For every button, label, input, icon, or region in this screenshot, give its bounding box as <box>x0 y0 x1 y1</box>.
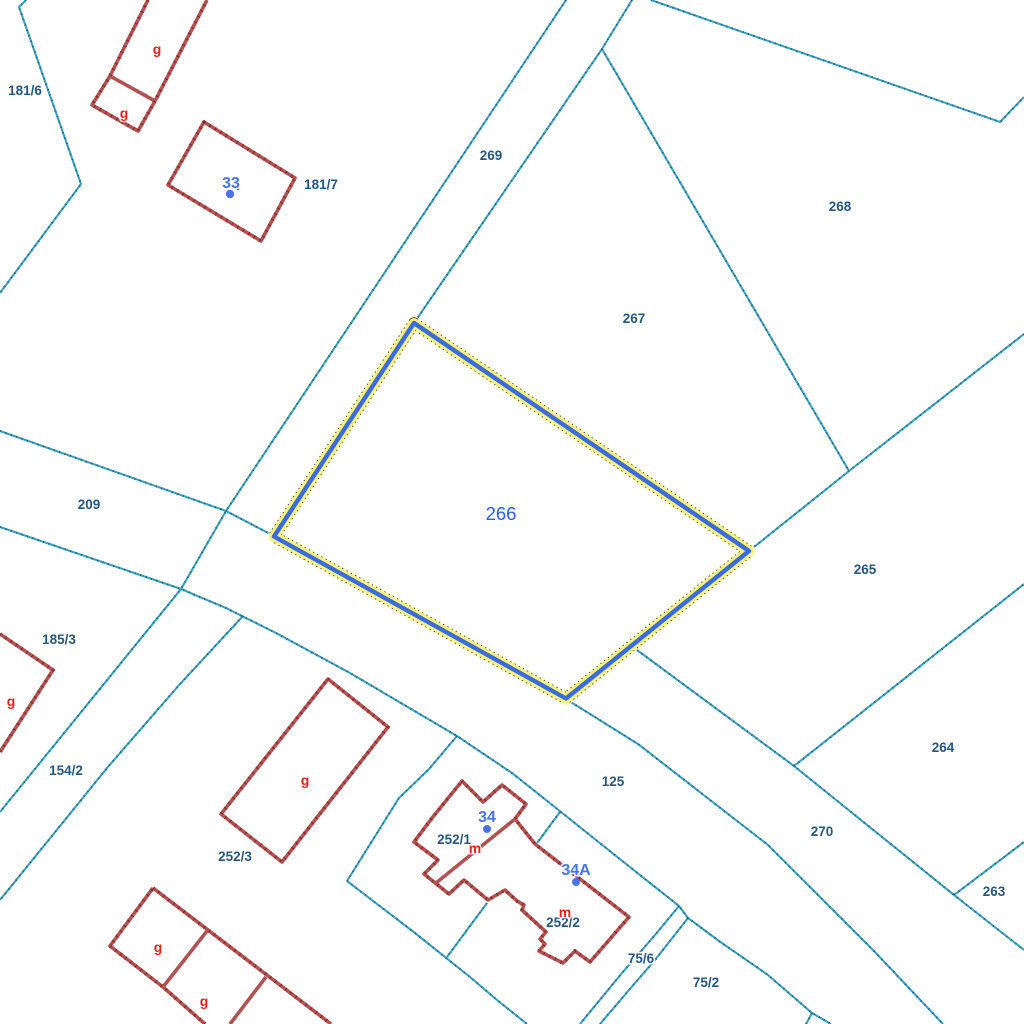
svg-text:263: 263 <box>983 884 1006 899</box>
svg-text:270: 270 <box>811 824 834 839</box>
svg-text:g: g <box>120 105 129 121</box>
svg-text:154/2: 154/2 <box>49 763 83 778</box>
svg-text:125: 125 <box>602 774 625 789</box>
svg-text:33: 33 <box>222 175 240 192</box>
svg-text:268: 268 <box>829 199 852 214</box>
svg-text:g: g <box>7 693 16 709</box>
svg-text:g: g <box>200 993 209 1009</box>
svg-text:265: 265 <box>854 562 877 577</box>
svg-text:252/1: 252/1 <box>437 832 471 847</box>
svg-text:75/6: 75/6 <box>628 951 655 966</box>
svg-text:252/3: 252/3 <box>218 849 252 864</box>
svg-text:g: g <box>301 772 310 788</box>
svg-text:185/3: 185/3 <box>42 632 76 647</box>
svg-text:75/2: 75/2 <box>693 975 719 990</box>
svg-text:181/7: 181/7 <box>304 177 338 192</box>
svg-text:34A: 34A <box>561 862 591 879</box>
svg-text:m: m <box>469 840 481 856</box>
svg-text:264: 264 <box>932 740 955 755</box>
svg-text:g: g <box>154 939 163 955</box>
svg-text:267: 267 <box>623 311 646 326</box>
svg-text:m: m <box>559 904 571 920</box>
svg-text:34: 34 <box>478 809 496 826</box>
svg-text:g: g <box>153 41 162 57</box>
svg-text:209: 209 <box>78 497 101 512</box>
svg-text:269: 269 <box>480 148 503 163</box>
svg-text:266: 266 <box>486 503 517 524</box>
svg-text:181/6: 181/6 <box>8 83 42 98</box>
